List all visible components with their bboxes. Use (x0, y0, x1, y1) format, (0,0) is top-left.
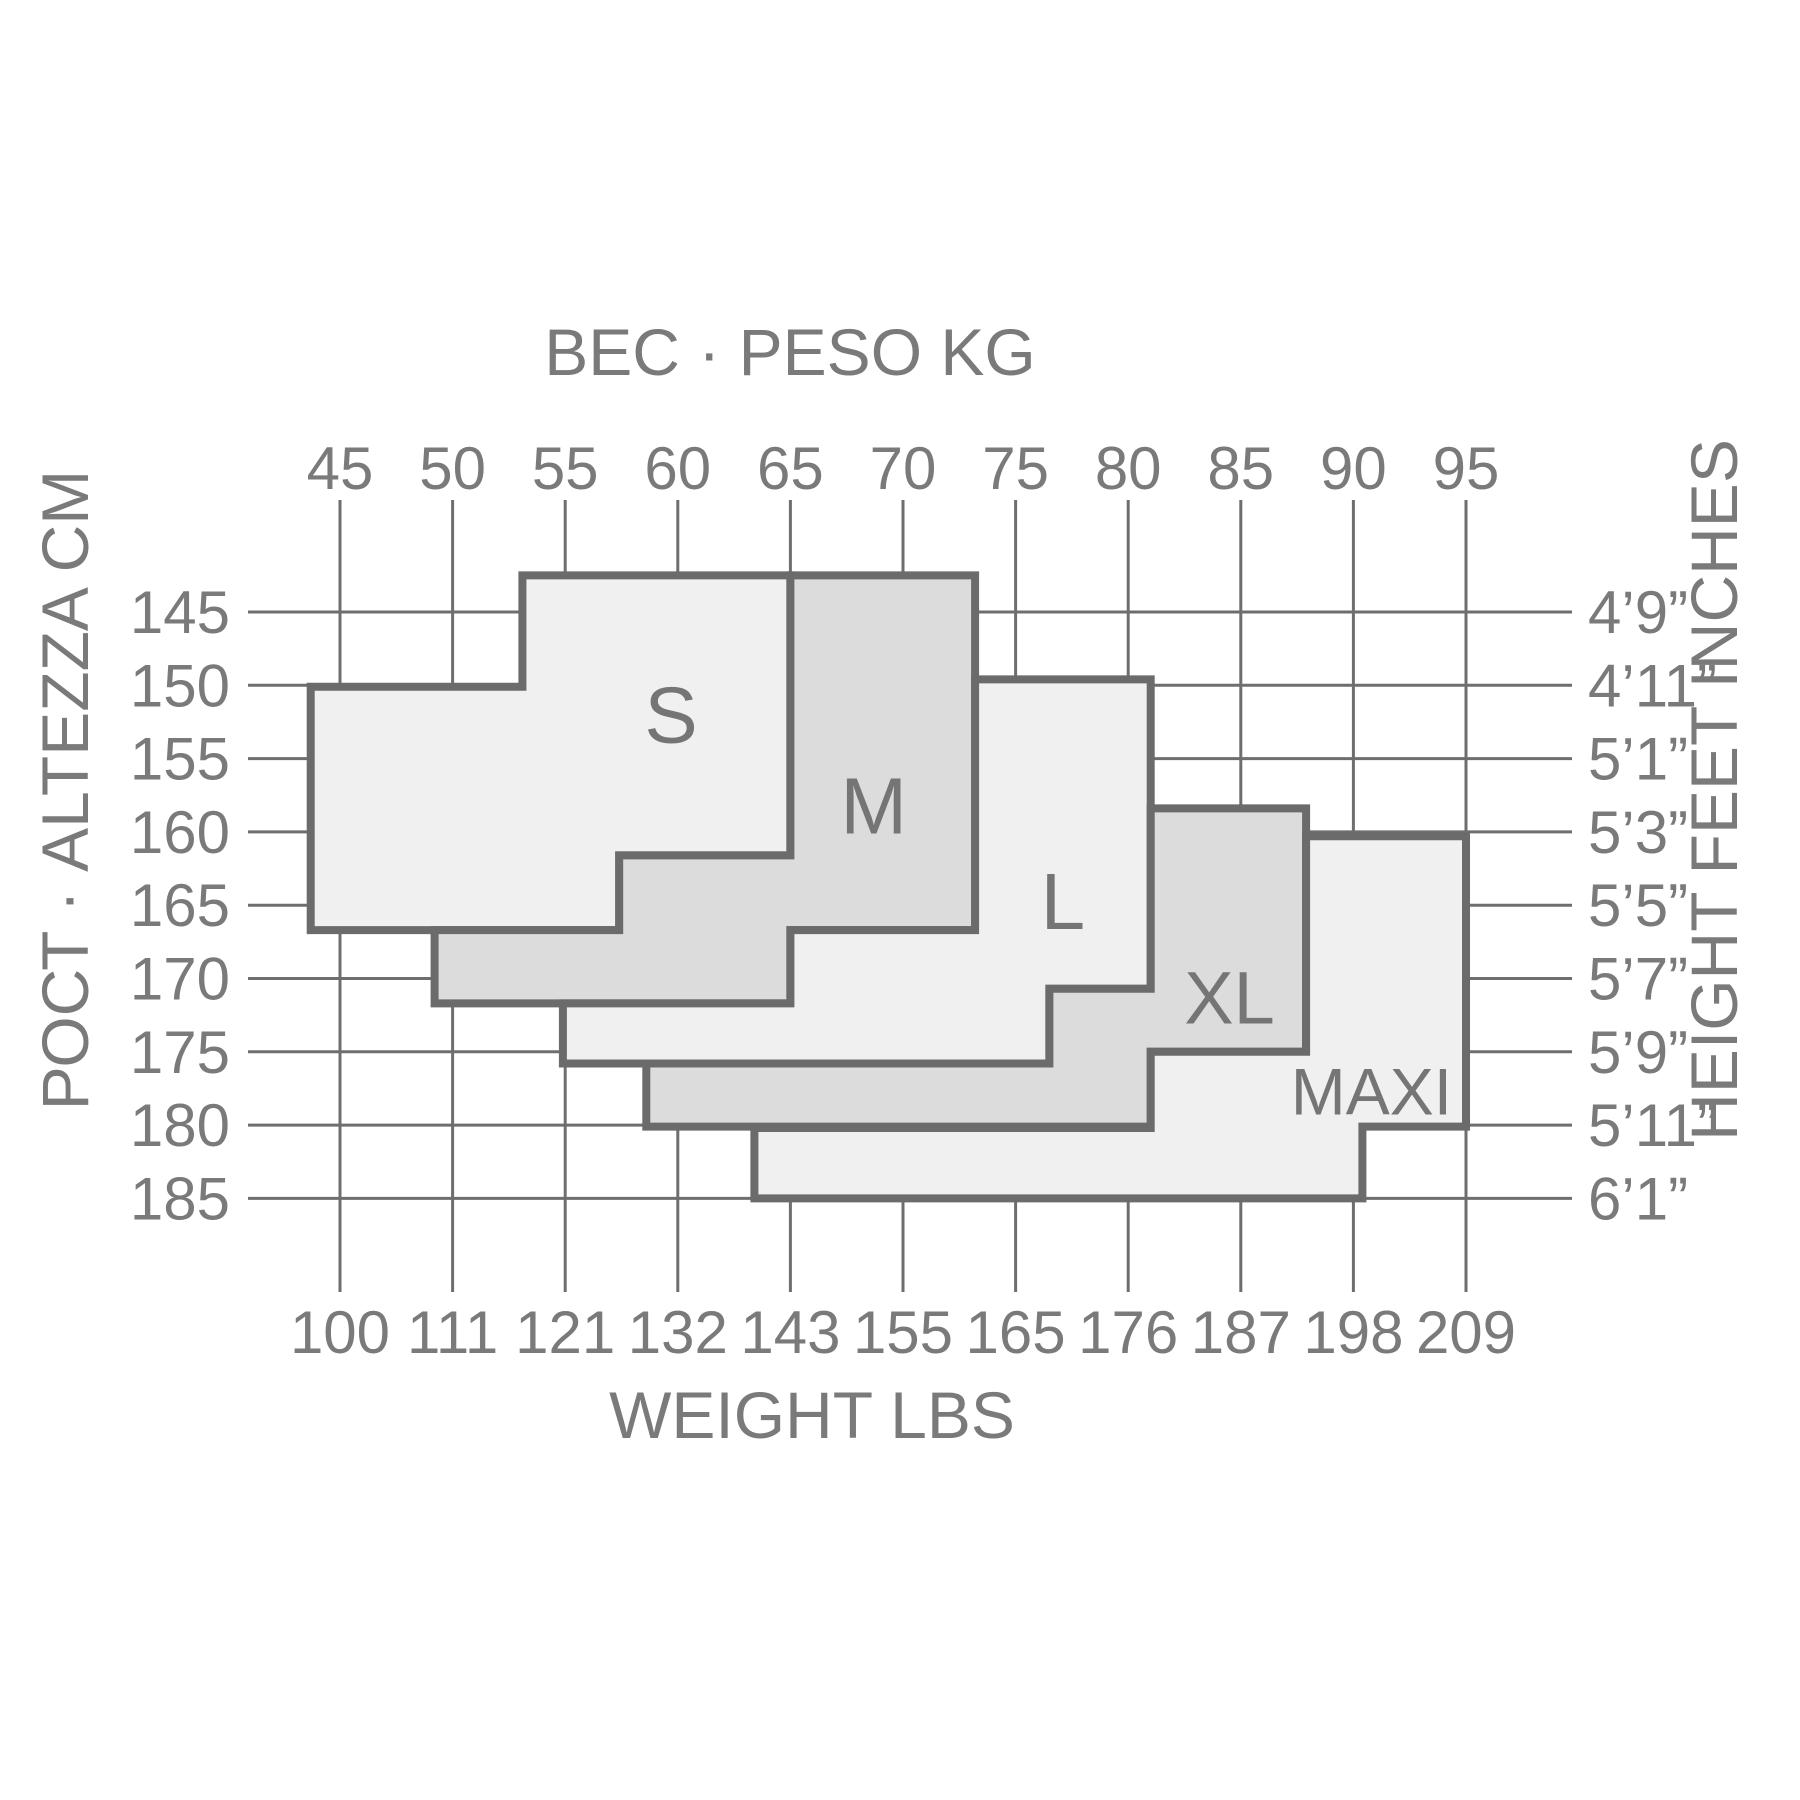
kg-tick-label-60: 60 (644, 435, 711, 502)
size-chart-svg: SMLXLMAXI 4550556065707580859095 1001111… (0, 0, 1800, 1800)
size-chart: SMLXLMAXI 4550556065707580859095 1001111… (0, 0, 1800, 1800)
lbs-tick-label-143: 143 (740, 1299, 840, 1366)
lbs-tick-label-132: 132 (628, 1299, 728, 1366)
feet-tick-label-6: 5’9” (1588, 1019, 1688, 1086)
axis-left-cm-labels: 145150155160165170175180185 (130, 579, 230, 1232)
feet-tick-label-4: 5’5” (1588, 872, 1688, 939)
lbs-tick-label-155: 155 (853, 1299, 953, 1366)
cm-tick-label-155: 155 (130, 726, 230, 793)
axis-title-bottom-weight-lbs: WEIGHT LBS (609, 1378, 1015, 1452)
lbs-tick-label-165: 165 (966, 1299, 1066, 1366)
axis-title-right-height-feet: HEIGHT FEET INCHES (1677, 439, 1751, 1141)
feet-tick-label-2: 5’1” (1588, 726, 1688, 793)
cm-tick-label-185: 185 (130, 1165, 230, 1232)
kg-tick-label-85: 85 (1207, 435, 1274, 502)
lbs-tick-label-209: 209 (1416, 1299, 1516, 1366)
lbs-tick-label-198: 198 (1303, 1299, 1403, 1366)
kg-tick-label-65: 65 (757, 435, 824, 502)
kg-tick-label-55: 55 (532, 435, 599, 502)
kg-tick-label-80: 80 (1095, 435, 1162, 502)
region-label-MAXI: MAXI (1291, 1055, 1452, 1129)
lbs-tick-label-100: 100 (290, 1299, 390, 1366)
kg-tick-label-45: 45 (307, 435, 374, 502)
kg-tick-label-95: 95 (1433, 435, 1500, 502)
axis-title-top-weight-kg: ВЕС · PESO KG (544, 315, 1035, 389)
lbs-tick-label-121: 121 (515, 1299, 615, 1366)
cm-tick-label-180: 180 (130, 1092, 230, 1159)
region-label-XL: XL (1184, 957, 1275, 1040)
axis-title-left-height-cm: РОСТ · ALTEZZA CM (28, 470, 102, 1111)
axis-bottom-lbs-labels: 100111121132143155165176187198209 (290, 1299, 1516, 1366)
region-label-L: L (1041, 857, 1086, 946)
region-label-S: S (644, 671, 697, 760)
cm-tick-label-170: 170 (130, 946, 230, 1013)
cm-tick-label-175: 175 (130, 1019, 230, 1086)
kg-tick-label-75: 75 (982, 435, 1049, 502)
cm-tick-label-150: 150 (130, 652, 230, 719)
region-label-M: M (840, 762, 907, 851)
feet-tick-label-0: 4’9” (1588, 579, 1688, 646)
kg-tick-label-50: 50 (419, 435, 486, 502)
feet-tick-label-5: 5’7” (1588, 946, 1688, 1013)
cm-tick-label-160: 160 (130, 799, 230, 866)
lbs-tick-label-111: 111 (407, 1299, 498, 1366)
axis-top-kg-labels: 4550556065707580859095 (307, 435, 1500, 502)
kg-tick-label-90: 90 (1320, 435, 1387, 502)
kg-tick-label-70: 70 (870, 435, 937, 502)
feet-tick-label-8: 6’1” (1588, 1165, 1688, 1232)
cm-tick-label-145: 145 (130, 579, 230, 646)
cm-tick-label-165: 165 (130, 872, 230, 939)
lbs-tick-label-176: 176 (1078, 1299, 1178, 1366)
feet-tick-label-3: 5’3” (1588, 799, 1688, 866)
lbs-tick-label-187: 187 (1191, 1299, 1291, 1366)
size-regions: SMLXLMAXI (311, 575, 1466, 1198)
